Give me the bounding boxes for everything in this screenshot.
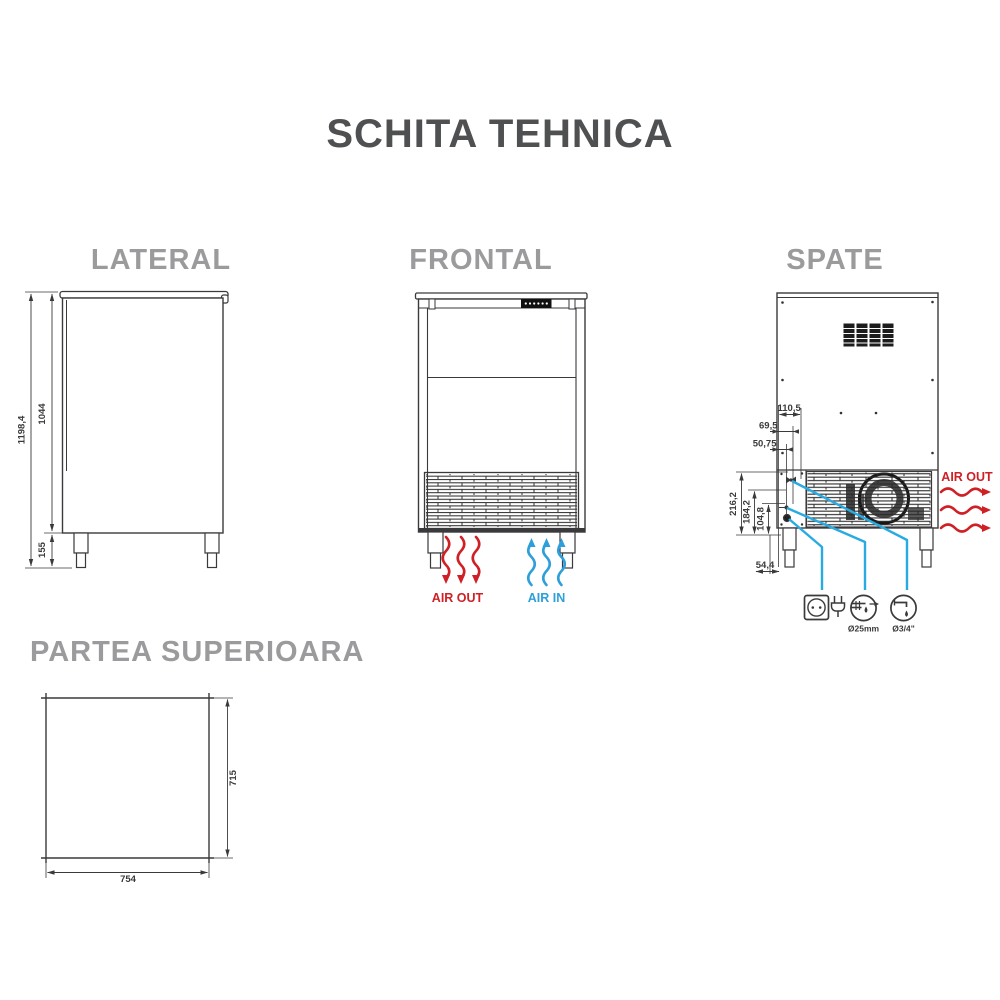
frontal-air-grille [425, 473, 579, 529]
top-view-drawing: 715 754 [41, 693, 239, 885]
height-dim-2-label: 184,2 [742, 500, 753, 524]
frontal-top-lid [416, 293, 588, 299]
bottom-dim-label: 54,4 [756, 560, 775, 571]
top-outline [41, 693, 214, 863]
width-dimension-label: 754 [120, 874, 137, 885]
lateral-top-lid [60, 292, 228, 299]
offset-dim-3-label: 50,75 [753, 439, 777, 450]
frontal-right-hinge [569, 299, 575, 309]
drawing-canvas: 1198,4 1044 155 [0, 0, 1000, 1000]
frontal-air-out-label: AIR OUT [432, 591, 484, 605]
frontal-view-drawing: AIR OUT AIR IN [416, 293, 588, 605]
technical-drawing-page: SCHITA TEHNICA LATERAL FRONTAL SPATE PAR… [0, 0, 1000, 1000]
top-dimensions: 715 754 [46, 698, 239, 885]
offset-dim-2-label: 69,5 [759, 421, 778, 432]
connection-icons: Ø25mm Ø3/4" [805, 595, 917, 633]
height-dim-3-label: 104,8 [756, 507, 767, 531]
spate-air-out-label: AIR OUT [941, 470, 993, 484]
lateral-cabinet-body [63, 298, 224, 533]
height-dim-1-label: 216,2 [728, 492, 739, 516]
control-panel [522, 300, 552, 308]
frontal-air-in-label: AIR IN [528, 591, 566, 605]
offset-dim-1-label: 110,5 [778, 403, 802, 414]
drain-icon [891, 595, 916, 620]
power-plug-icon [832, 596, 845, 617]
lateral-legs [74, 533, 219, 568]
spate-view-drawing: 110,5 69,5 50,75 216,2 184,2 104,8 [728, 293, 993, 634]
power-socket-icon [805, 596, 829, 620]
total-height-dimension-label: 1198,4 [17, 415, 28, 444]
leg-height-dimension-label: 155 [37, 541, 48, 558]
water-inlet-icon [851, 595, 879, 620]
drain-size-label: Ø3/4" [892, 624, 914, 634]
frontal-left-hinge [429, 299, 435, 309]
depth-dimension-label: 715 [228, 769, 239, 786]
frontal-legs [428, 532, 575, 568]
body-height-dimension-label: 1044 [37, 403, 48, 425]
lateral-view-drawing: 1198,4 1044 155 [17, 292, 229, 569]
air-in-arrows-frontal [528, 538, 566, 585]
air-out-arrows-frontal [442, 537, 480, 584]
water-inlet-size-label: Ø25mm [848, 624, 880, 634]
air-out-arrows-spate [941, 488, 991, 532]
